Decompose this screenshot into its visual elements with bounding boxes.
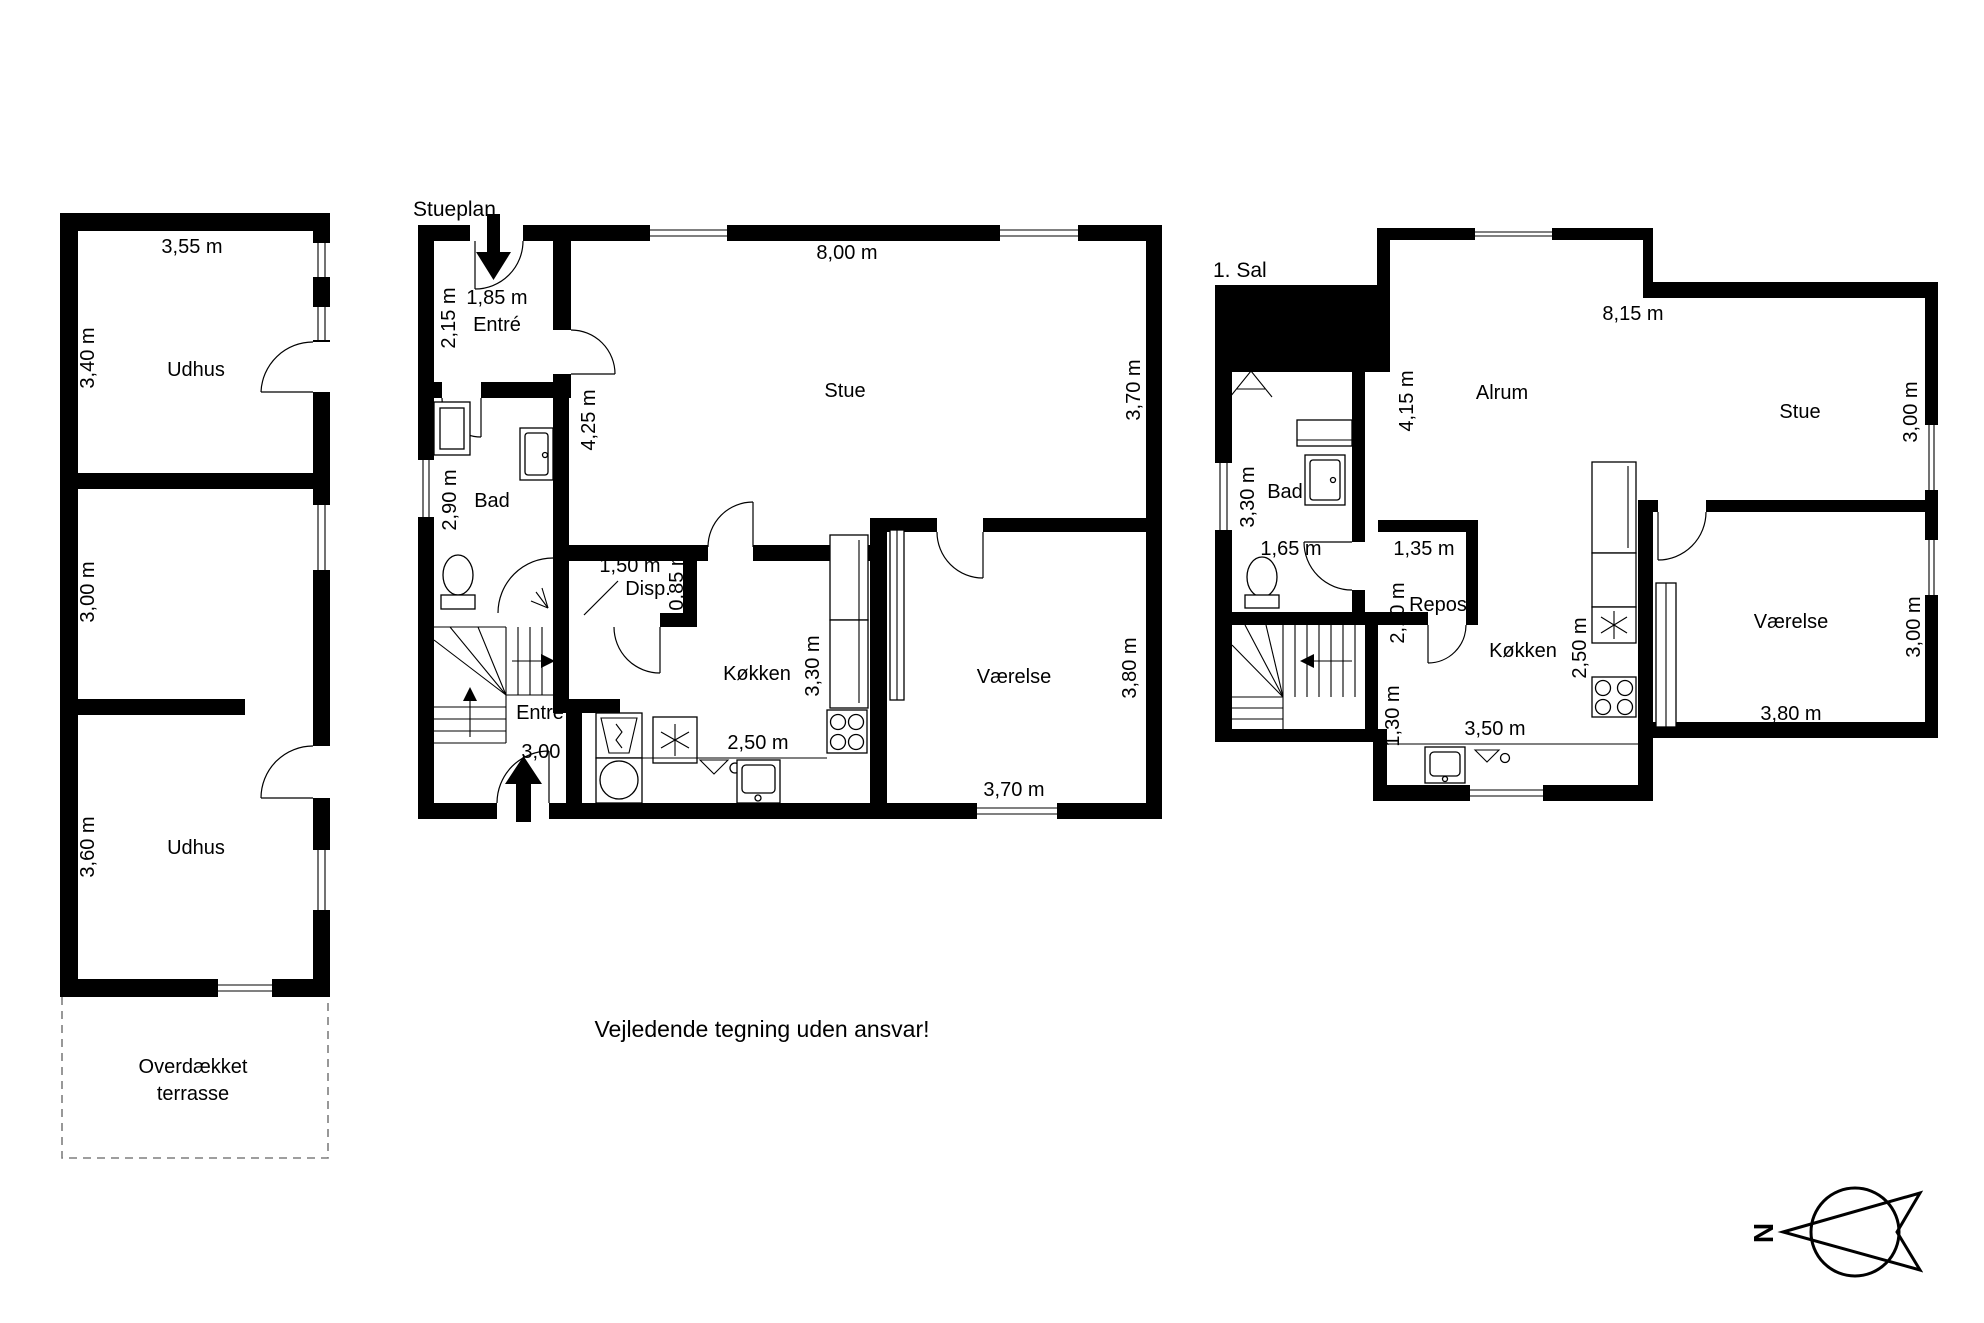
dimension-label: 8,00 m (816, 242, 877, 264)
toilet (441, 555, 475, 609)
dimension-label: 4,25 m (578, 389, 600, 450)
toilet (1245, 557, 1279, 608)
wall (1373, 785, 1470, 801)
window (650, 225, 727, 241)
dimension-label: 1,65 m (1260, 538, 1321, 560)
entrance-arrow-up (505, 756, 542, 822)
window (1470, 785, 1543, 801)
stove (1592, 677, 1636, 717)
dimension-label: 1,35 m (1393, 538, 1454, 560)
dimension-label: 1,85 m (466, 287, 527, 309)
wall (523, 225, 650, 241)
stove (827, 710, 867, 753)
door-swing (1428, 625, 1466, 663)
door-swing (261, 746, 313, 798)
dimension-label: 2,50 m (727, 732, 788, 754)
window (1000, 225, 1078, 241)
dimension-label: 3,30 m (1237, 466, 1259, 527)
door-swing (937, 532, 983, 578)
disclaimer-text: Vejledende tegning uden ansvar! (594, 1016, 929, 1042)
wall (434, 382, 442, 398)
room-label: Værelse (977, 666, 1051, 688)
terrace-label-line1: Overdækket (139, 1056, 248, 1078)
wall (1365, 612, 1378, 742)
floorplan-drawing: 3,55 m 3,40 m Udhus 3,00 m 3,60 m Udhus … (0, 0, 1984, 1323)
fridge-freezer (653, 717, 697, 763)
plan-title: 1. Sal (1213, 259, 1267, 282)
dimension-label: 3,00 m (521, 741, 582, 763)
vanity-shelf (1297, 420, 1352, 446)
wall (727, 225, 1000, 241)
room-label: Køkken (723, 663, 791, 685)
wall (660, 613, 697, 627)
floorplan-page: 3,55 m 3,40 m Udhus 3,00 m 3,60 m Udhus … (0, 0, 1984, 1323)
room-label: Alrum (1476, 382, 1528, 404)
window (418, 460, 434, 517)
wall (1466, 532, 1478, 625)
room-label: Udhus (167, 837, 225, 859)
water-heater (596, 713, 642, 758)
room-label: Stue (824, 380, 865, 402)
wall (1653, 500, 1658, 512)
dimension-label: 3,70 m (983, 779, 1044, 801)
dimension-label: 1,50 m (599, 555, 660, 577)
vanity-sink (434, 402, 470, 455)
room-label: Værelse (1754, 611, 1828, 633)
window (1925, 425, 1938, 490)
door-swing (1658, 512, 1706, 560)
dimension-label: 3,70 m (1123, 359, 1145, 420)
kitchen-sink (737, 760, 780, 803)
room-label: Disp. (625, 578, 671, 600)
corner-shower (498, 558, 553, 613)
room-label: Entré (516, 702, 564, 724)
wall (1638, 500, 1653, 722)
door-swing (708, 502, 753, 547)
dimension-label: 3,30 m (802, 635, 824, 696)
room-label: Bad (1267, 481, 1303, 503)
dimension-label: 3,50 m (1464, 718, 1525, 740)
window (1475, 228, 1552, 240)
entrance-arrow-down (476, 214, 511, 280)
void-area (1215, 285, 1390, 372)
door-swing (261, 342, 313, 392)
window (313, 307, 330, 340)
dimension-label: 3,00 m (77, 561, 99, 622)
window (313, 505, 330, 570)
room-label: Stue (1779, 401, 1820, 423)
dimension-label: 3,00 m (1903, 596, 1925, 657)
window (977, 803, 1057, 819)
wall (1146, 225, 1162, 819)
wardrobe (890, 530, 904, 700)
wall (418, 803, 497, 819)
dimension-label: 8,15 m (1602, 303, 1663, 325)
wall (1643, 282, 1938, 298)
wall (60, 473, 330, 489)
washing-machine (596, 758, 642, 803)
wall (553, 398, 569, 713)
stairs (1232, 625, 1355, 742)
dimension-label: 2,50 m (1569, 617, 1591, 678)
wall (60, 979, 330, 997)
compass: N (1748, 1188, 1920, 1276)
sloped-ceiling-icon (1230, 371, 1272, 397)
dimension-label: 4,15 m (1396, 370, 1418, 431)
wall (1706, 500, 1938, 512)
window (1215, 463, 1232, 530)
north-label: N (1748, 1223, 1779, 1243)
kitchen-sink (1425, 747, 1465, 783)
window (218, 979, 272, 997)
wall (549, 803, 977, 819)
room-label: Bad (474, 490, 510, 512)
dimension-label: 3,80 m (1760, 703, 1821, 725)
dimension-label: 3,00 m (1900, 381, 1922, 442)
shower-cabinet (520, 428, 553, 480)
dimension-label: 2,15 m (438, 287, 460, 348)
wall (983, 518, 1146, 532)
wall (418, 225, 434, 819)
wardrobe (1656, 583, 1676, 727)
window (313, 850, 330, 910)
plan-title: Stueplan (413, 198, 496, 221)
shower-cabinet (1305, 455, 1345, 505)
dimension-label: 0,85 m (666, 549, 688, 610)
wall (553, 241, 571, 330)
wall (1057, 803, 1162, 819)
dimension-label: 3,40 m (77, 327, 99, 388)
dimension-label: 3,55 m (161, 236, 222, 258)
wall (1378, 520, 1478, 532)
dimension-label: 2,90 m (439, 469, 461, 530)
outbuilding-plan: 3,55 m 3,40 m Udhus 3,00 m 3,60 m Udhus … (60, 213, 330, 1158)
window (313, 243, 330, 277)
wall (1215, 729, 1387, 742)
faucet-icon (1475, 750, 1510, 763)
ground-floor-plan: Stueplan (413, 198, 1162, 822)
wall (1543, 785, 1653, 801)
fridge-freezer (1592, 607, 1636, 643)
room-label: Entré (473, 314, 521, 336)
wall (60, 699, 245, 715)
wall (1377, 228, 1475, 240)
room-label: Udhus (167, 359, 225, 381)
terrace-label-line2: terrasse (157, 1083, 229, 1105)
faucet-icon (700, 760, 740, 774)
dimension-label: 3,80 m (1119, 637, 1141, 698)
wall (1352, 372, 1365, 542)
wall (481, 382, 571, 398)
dimension-label: 3,60 m (77, 816, 99, 877)
wall (870, 518, 887, 819)
first-floor-plan: 1. Sal (1213, 228, 1938, 801)
wall (1352, 590, 1365, 612)
room-label: Repos (1409, 594, 1467, 616)
wall (566, 699, 620, 713)
wall (1552, 228, 1653, 240)
wall (1373, 742, 1387, 801)
door-swing (571, 330, 615, 374)
stairs (434, 627, 555, 743)
wall (60, 213, 78, 997)
dimension-label: 1,30 m (1382, 685, 1404, 746)
dimension-label: 2,10 m (1387, 582, 1409, 643)
window (1925, 540, 1938, 595)
wall (60, 213, 330, 231)
room-label: Køkken (1489, 640, 1557, 662)
